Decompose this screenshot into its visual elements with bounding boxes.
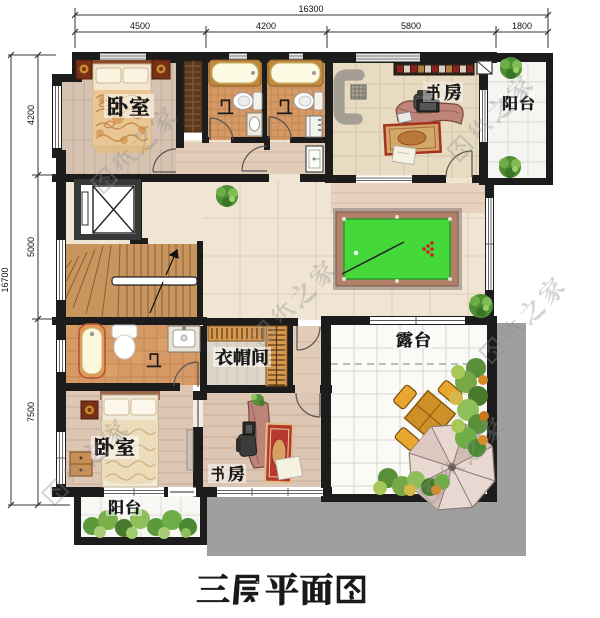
svg-text:4200: 4200 [256,21,276,31]
svg-text:7500: 7500 [26,402,36,422]
svg-text:5800: 5800 [401,21,421,31]
svg-text:4500: 4500 [130,21,150,31]
svg-text:1800: 1800 [512,21,532,31]
svg-text:4200: 4200 [26,105,36,125]
svg-text:16700: 16700 [0,267,10,292]
svg-text:16300: 16300 [298,4,323,14]
svg-text:5000: 5000 [26,237,36,257]
